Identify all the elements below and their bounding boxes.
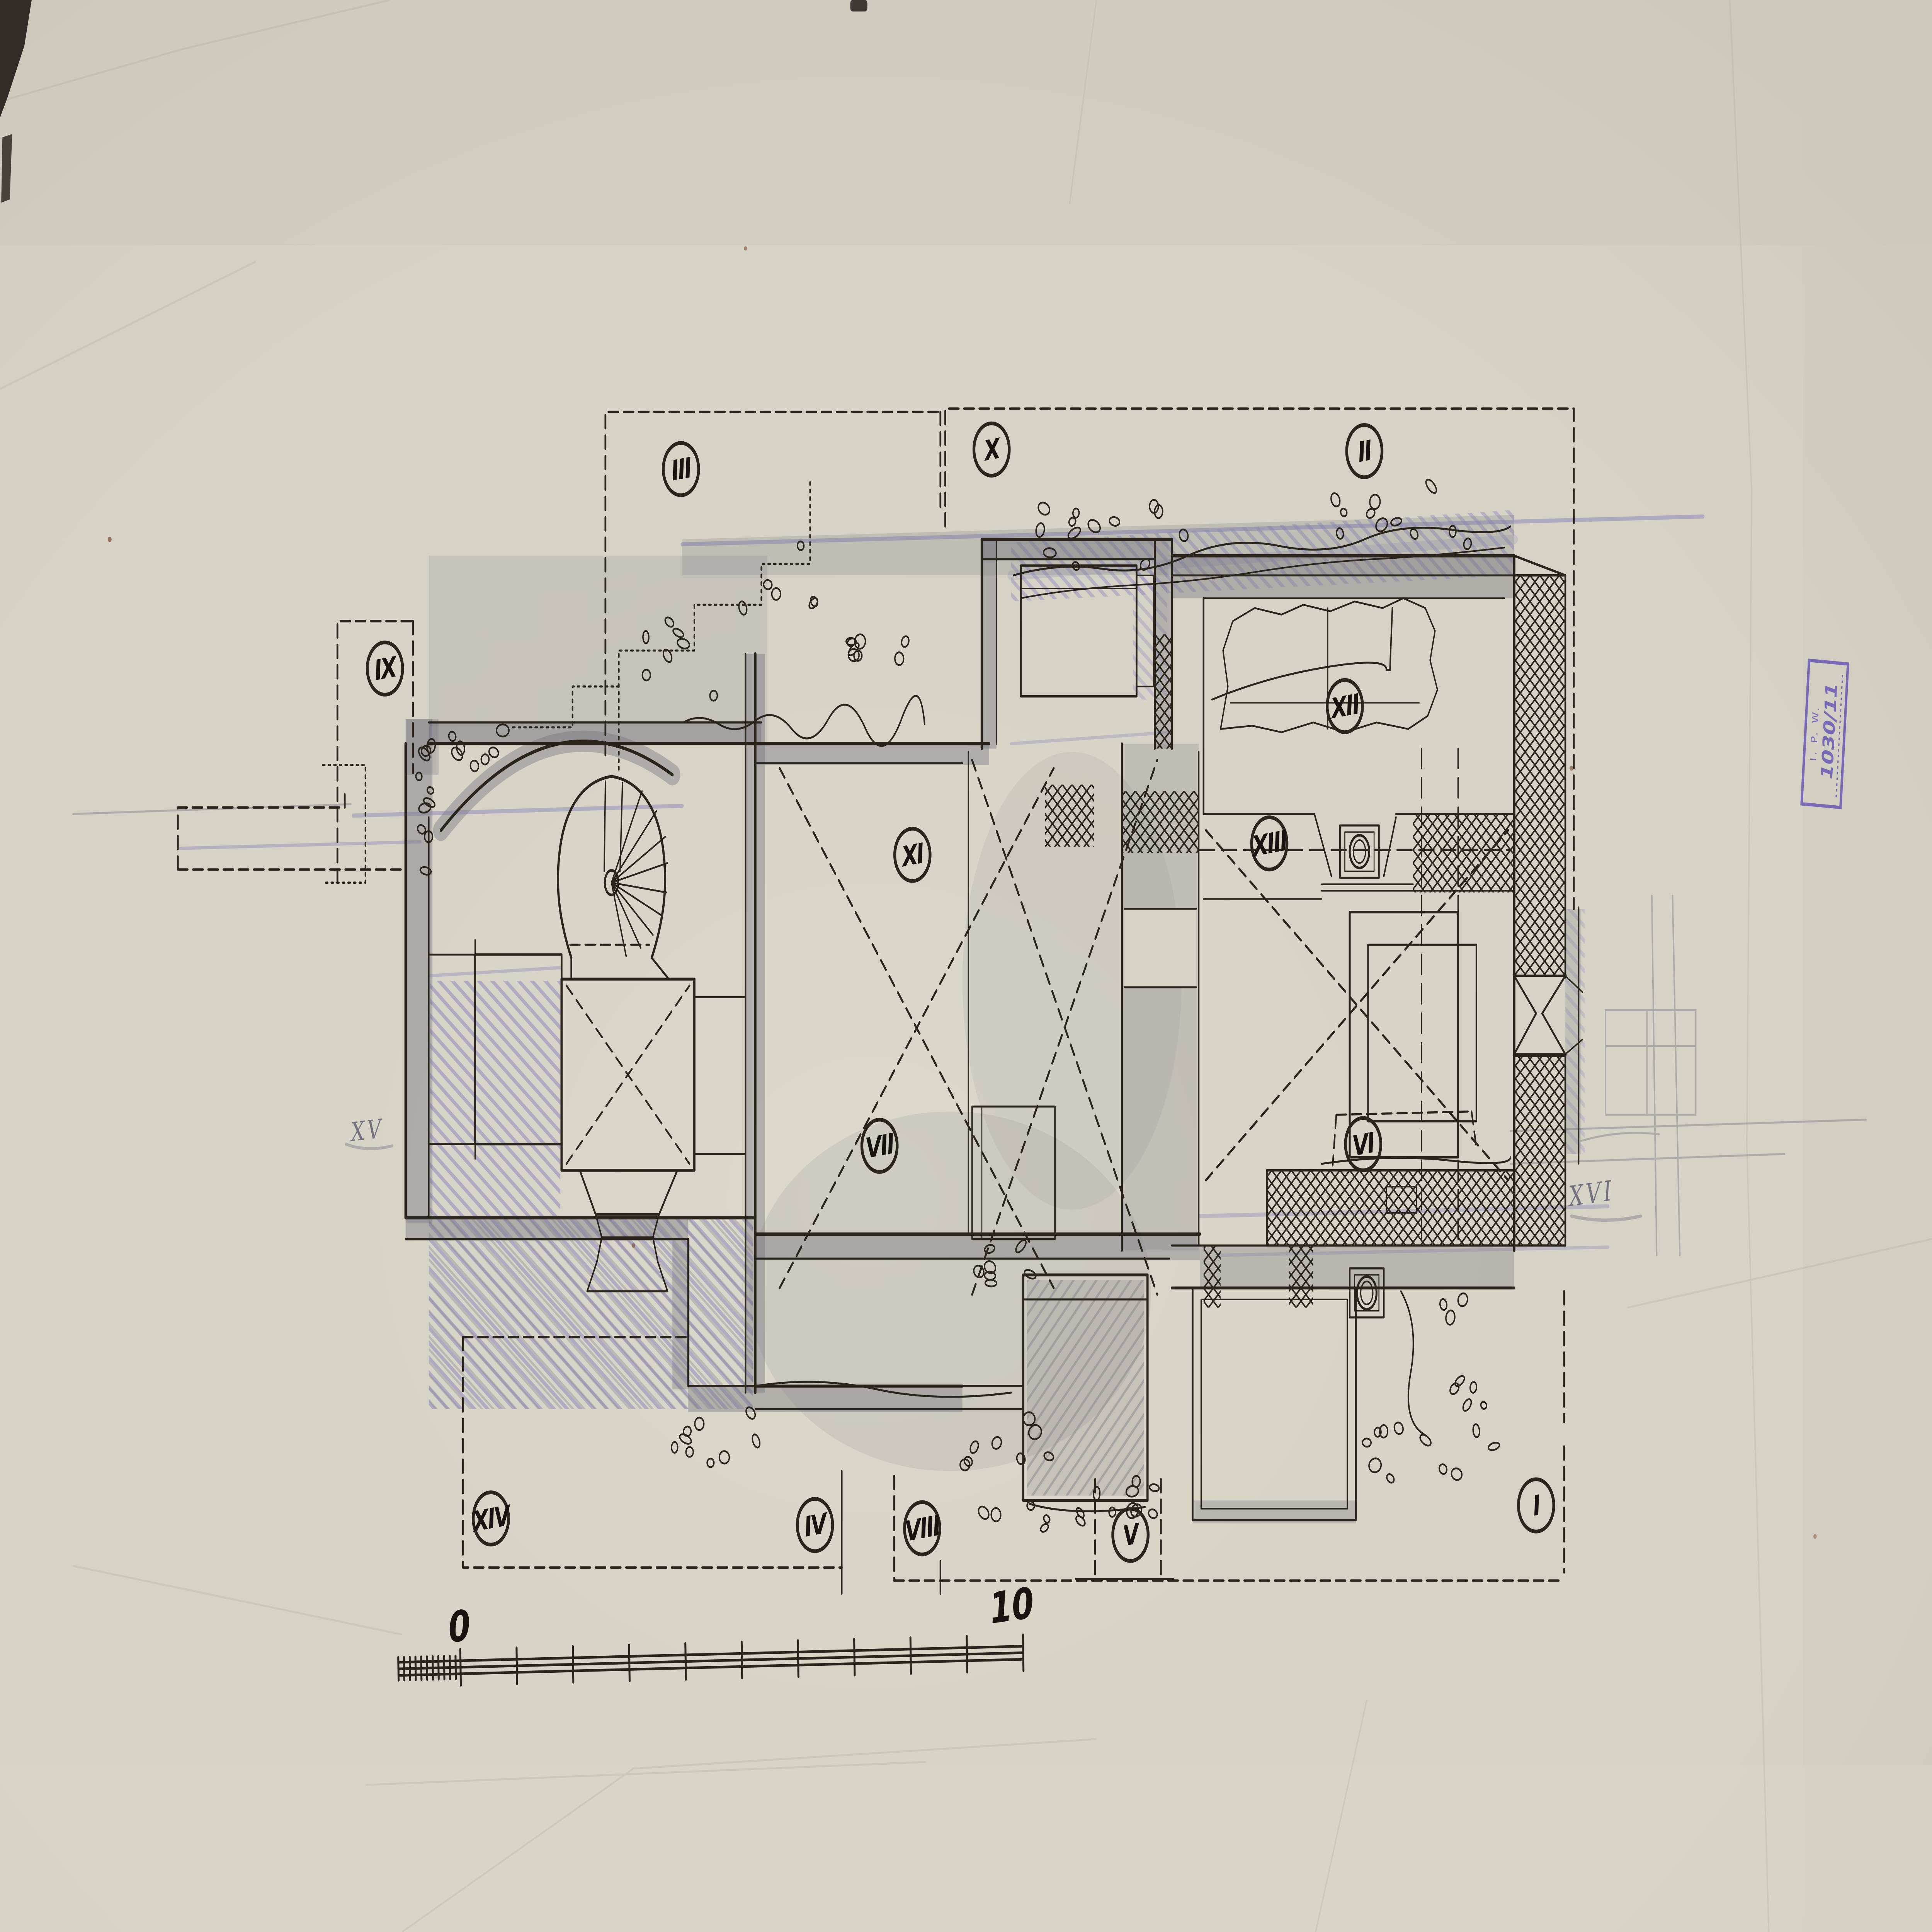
floor-plan-scan: IIIIIIIVVVIVIIVIIIIXXXIXIIXIIIXIV XV XVI… (0, 0, 1932, 1932)
scale-ten-label: 10 (988, 1578, 1036, 1634)
svg-text:XII: XII (1328, 687, 1361, 725)
pencil-label-xvi: XVI (1566, 1174, 1615, 1213)
pencil-label-xv: XV (349, 1114, 384, 1148)
svg-text:VIII: VIII (903, 1509, 942, 1548)
svg-text:XI: XI (899, 837, 925, 873)
svg-text:VI: VI (1351, 1126, 1376, 1162)
document-page: IIIIIIIVVVIVIIVIIIIXXXIXIIXIIIXIV XV XVI… (0, 0, 1932, 1932)
scale-zero-label: 0 (447, 1601, 472, 1652)
svg-text:XIII: XIII (1250, 824, 1289, 863)
cross-wall-doorway (1124, 909, 1196, 987)
svg-text:VII: VII (864, 1127, 896, 1165)
